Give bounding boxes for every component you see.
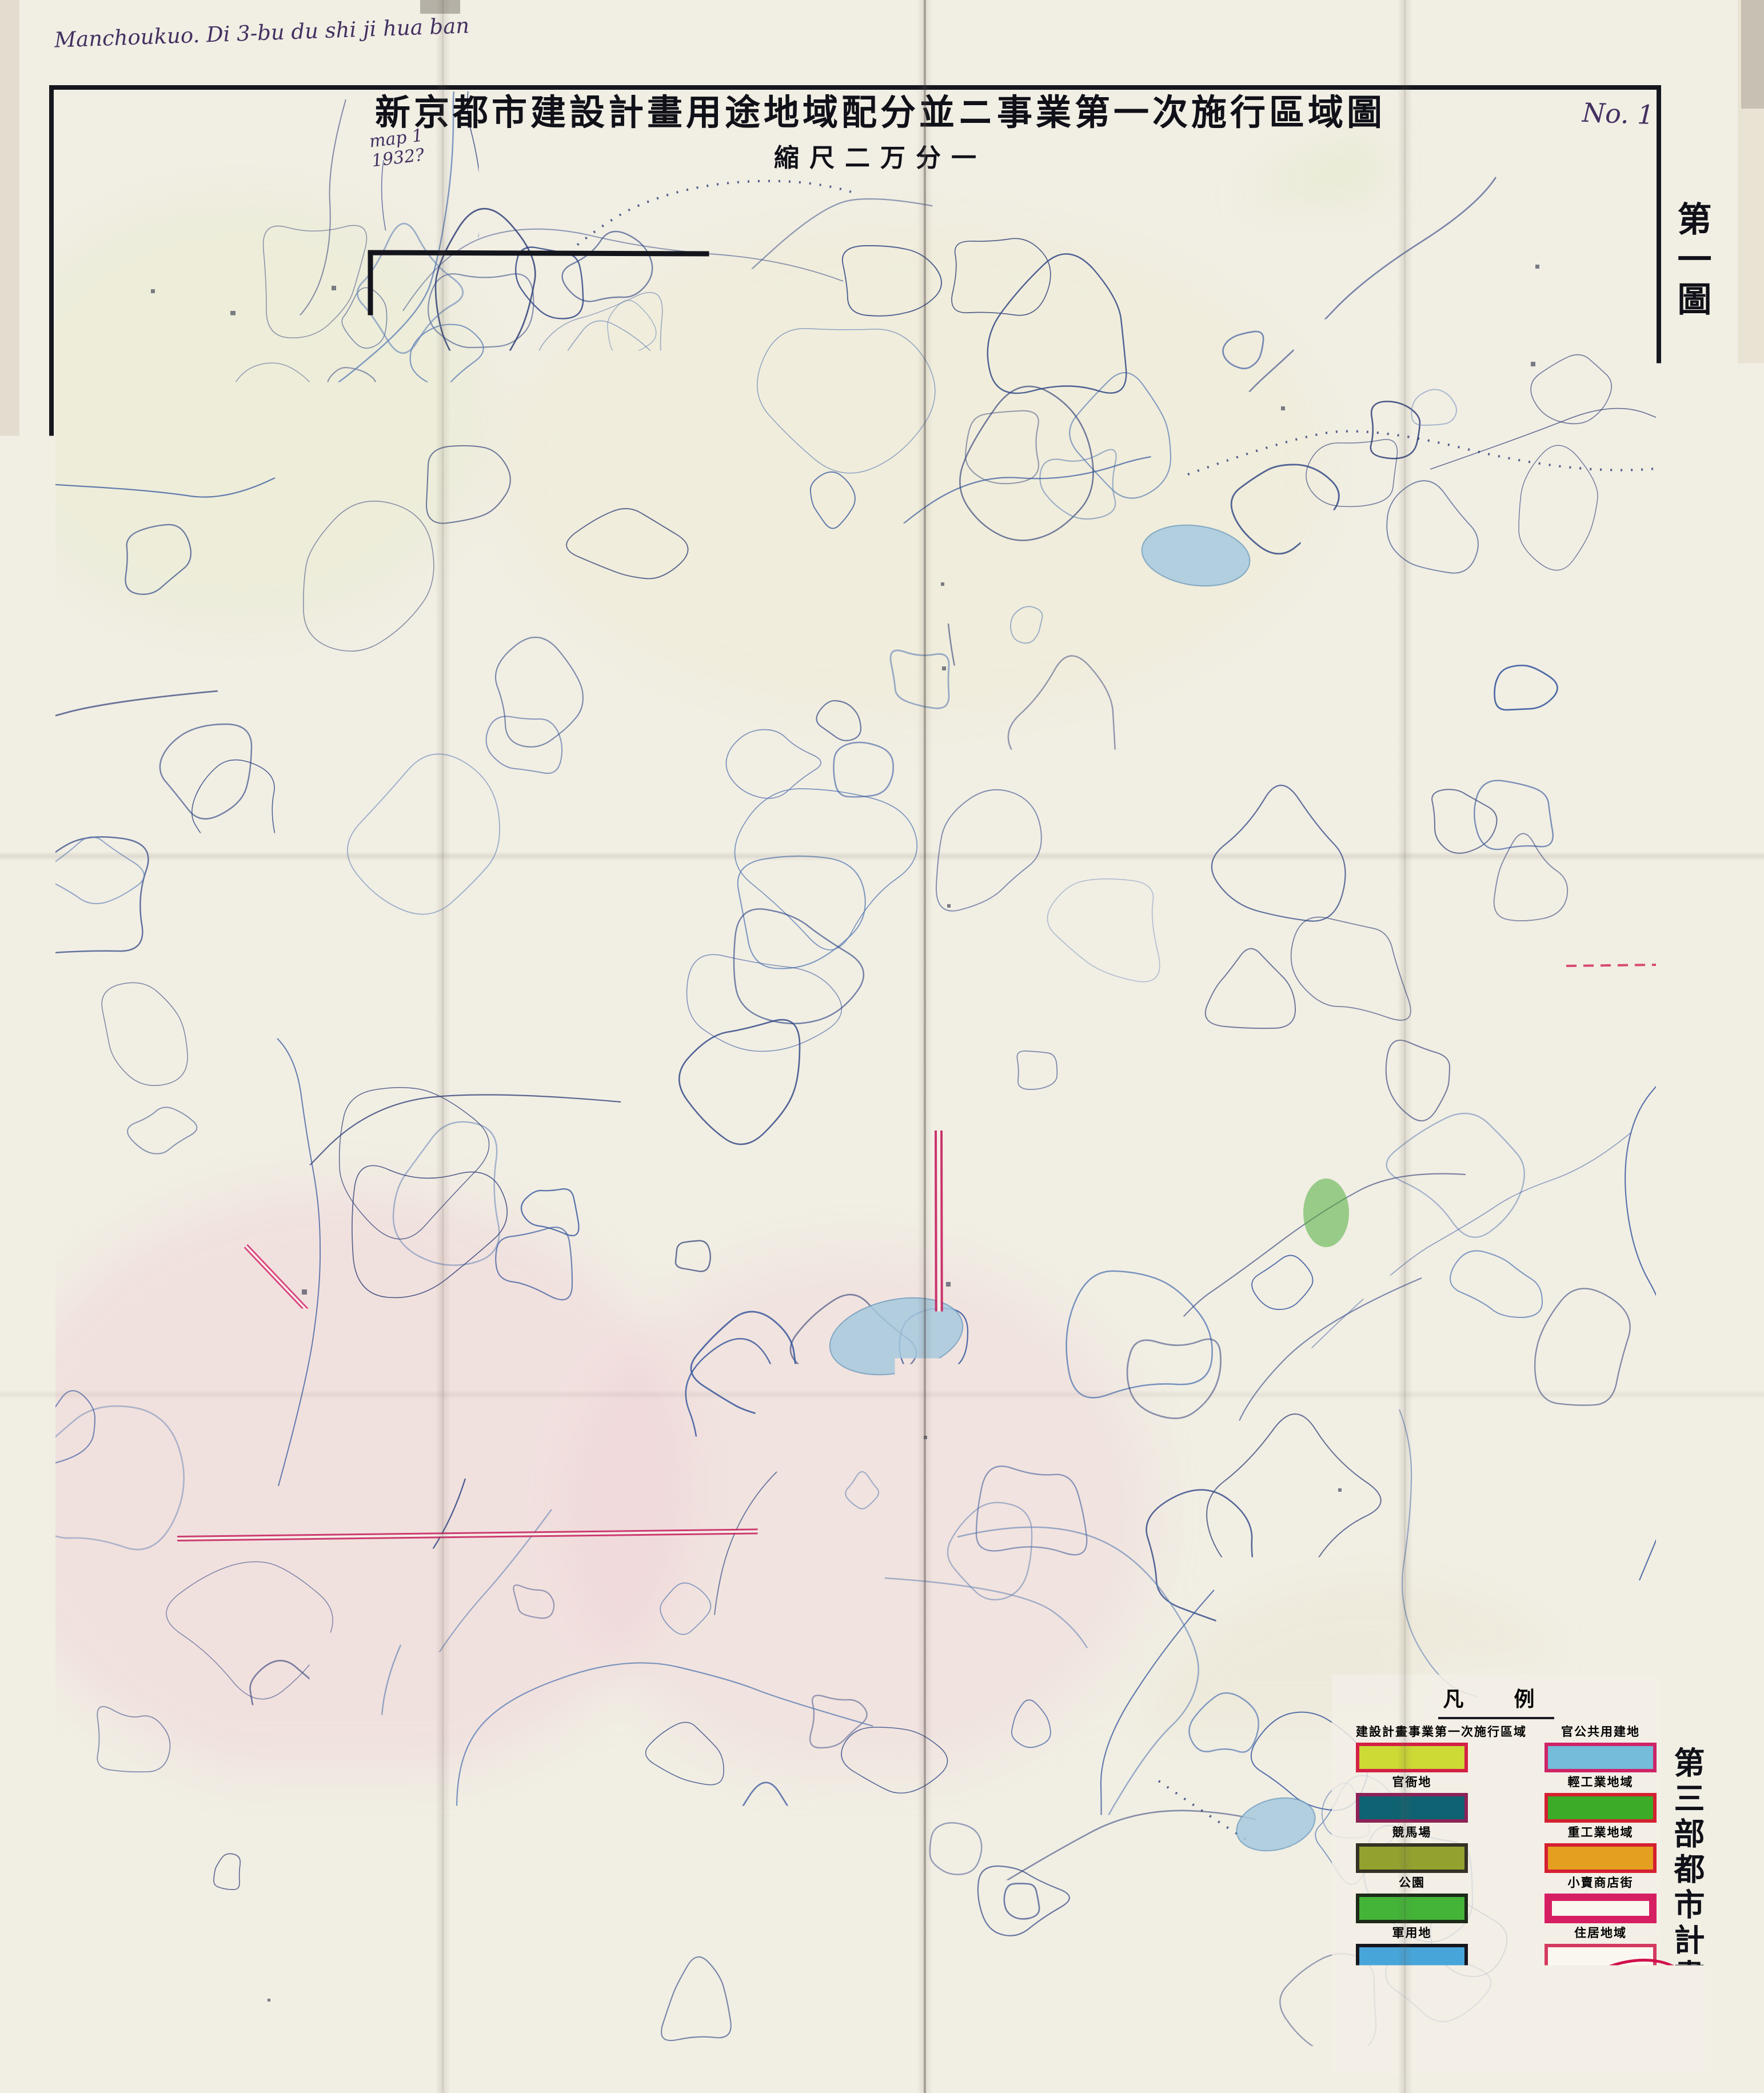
- legend-item-retail-street: 小賣商店街: [1545, 1874, 1657, 1923]
- legend-item-label: 競馬場: [1356, 1823, 1468, 1840]
- legend-item-label: 輕工業地域: [1545, 1773, 1657, 1790]
- legend-item-swatch: [1545, 1894, 1657, 1923]
- legend-item-label: 公園: [1356, 1874, 1468, 1891]
- legend-item-military-land: 軍用地: [1356, 1924, 1468, 1974]
- red-circle-symbol: [923, 1319, 957, 1353]
- sheet-label-right-top: 第一圖: [1667, 201, 1717, 321]
- legend-item-racecourse: 競馬場: [1356, 1823, 1468, 1873]
- legend-item-label: 軍用地: [1356, 1924, 1468, 1941]
- legend-item-swatch: [1356, 1894, 1468, 1923]
- legend-item-label: 官公共用建地: [1545, 1723, 1657, 1740]
- yellow-zone: [1291, 1119, 1564, 1399]
- legend-item-first-phase-area: 建設計畫事業第一次施行區域: [1356, 1723, 1468, 1772]
- legend-item-swatch: [1356, 1793, 1468, 1823]
- light-industry-zone: [1025, 601, 1180, 770]
- handwritten-map-note: map 1 1932?: [368, 126, 426, 171]
- legend-item-swatch: [1356, 1944, 1468, 1974]
- right-paper-edge: [1738, 0, 1764, 2093]
- tape-mark: [420, 0, 460, 14]
- legend-item-label: 重工業地域: [1545, 1823, 1657, 1840]
- corner-stain: [1741, 0, 1764, 109]
- heavy-industry-zone: [1322, 799, 1564, 1127]
- legend-item-swatch: [1545, 1793, 1657, 1823]
- legend-item-light-industry: 輕工業地域: [1545, 1773, 1657, 1823]
- legend-item-label: 住居地域: [1545, 1924, 1657, 1941]
- legend-header-text: 凡 例: [1438, 1683, 1554, 1719]
- legend-item-government-office-land: 官衙地: [1356, 1773, 1468, 1823]
- legend-item-swatch: [1356, 1743, 1468, 1772]
- left-paper-edge: [0, 0, 19, 2093]
- legend-item-label: 執政府關係用地: [1356, 1974, 1468, 1991]
- handwritten-number-note: No. 1: [1582, 97, 1654, 130]
- legend-item-label: 官衙地: [1356, 1773, 1468, 1790]
- legend-item-swatch: [1356, 1994, 1468, 2024]
- legend-item-swatch: [1356, 1843, 1468, 1873]
- legend-item-label: 建設計畫事業第一次施行區域: [1356, 1723, 1468, 1740]
- legend-item-heavy-industry: 重工業地域: [1545, 1823, 1657, 1873]
- legend-item-swatch: [1545, 1843, 1657, 1873]
- map-title: 新京都市建設計畫用途地域配分並ニ事業第一次施行區域圖: [171, 83, 1589, 135]
- legend-item-park: 公園: [1356, 1874, 1468, 1923]
- legend-item-swatch: [1545, 1743, 1657, 1772]
- map-place-label: 大營: [973, 1829, 994, 1859]
- legend-item-chief-executive-land: 執政府關係用地: [1356, 1974, 1468, 2024]
- accession-number: 2003548912: [86, 2046, 228, 2069]
- legend-item-public-building-land: 官公共用建地: [1545, 1723, 1657, 1772]
- legend-item-label: 小賣商店街: [1545, 1874, 1657, 1891]
- legend-header: 凡 例: [1332, 1683, 1661, 1719]
